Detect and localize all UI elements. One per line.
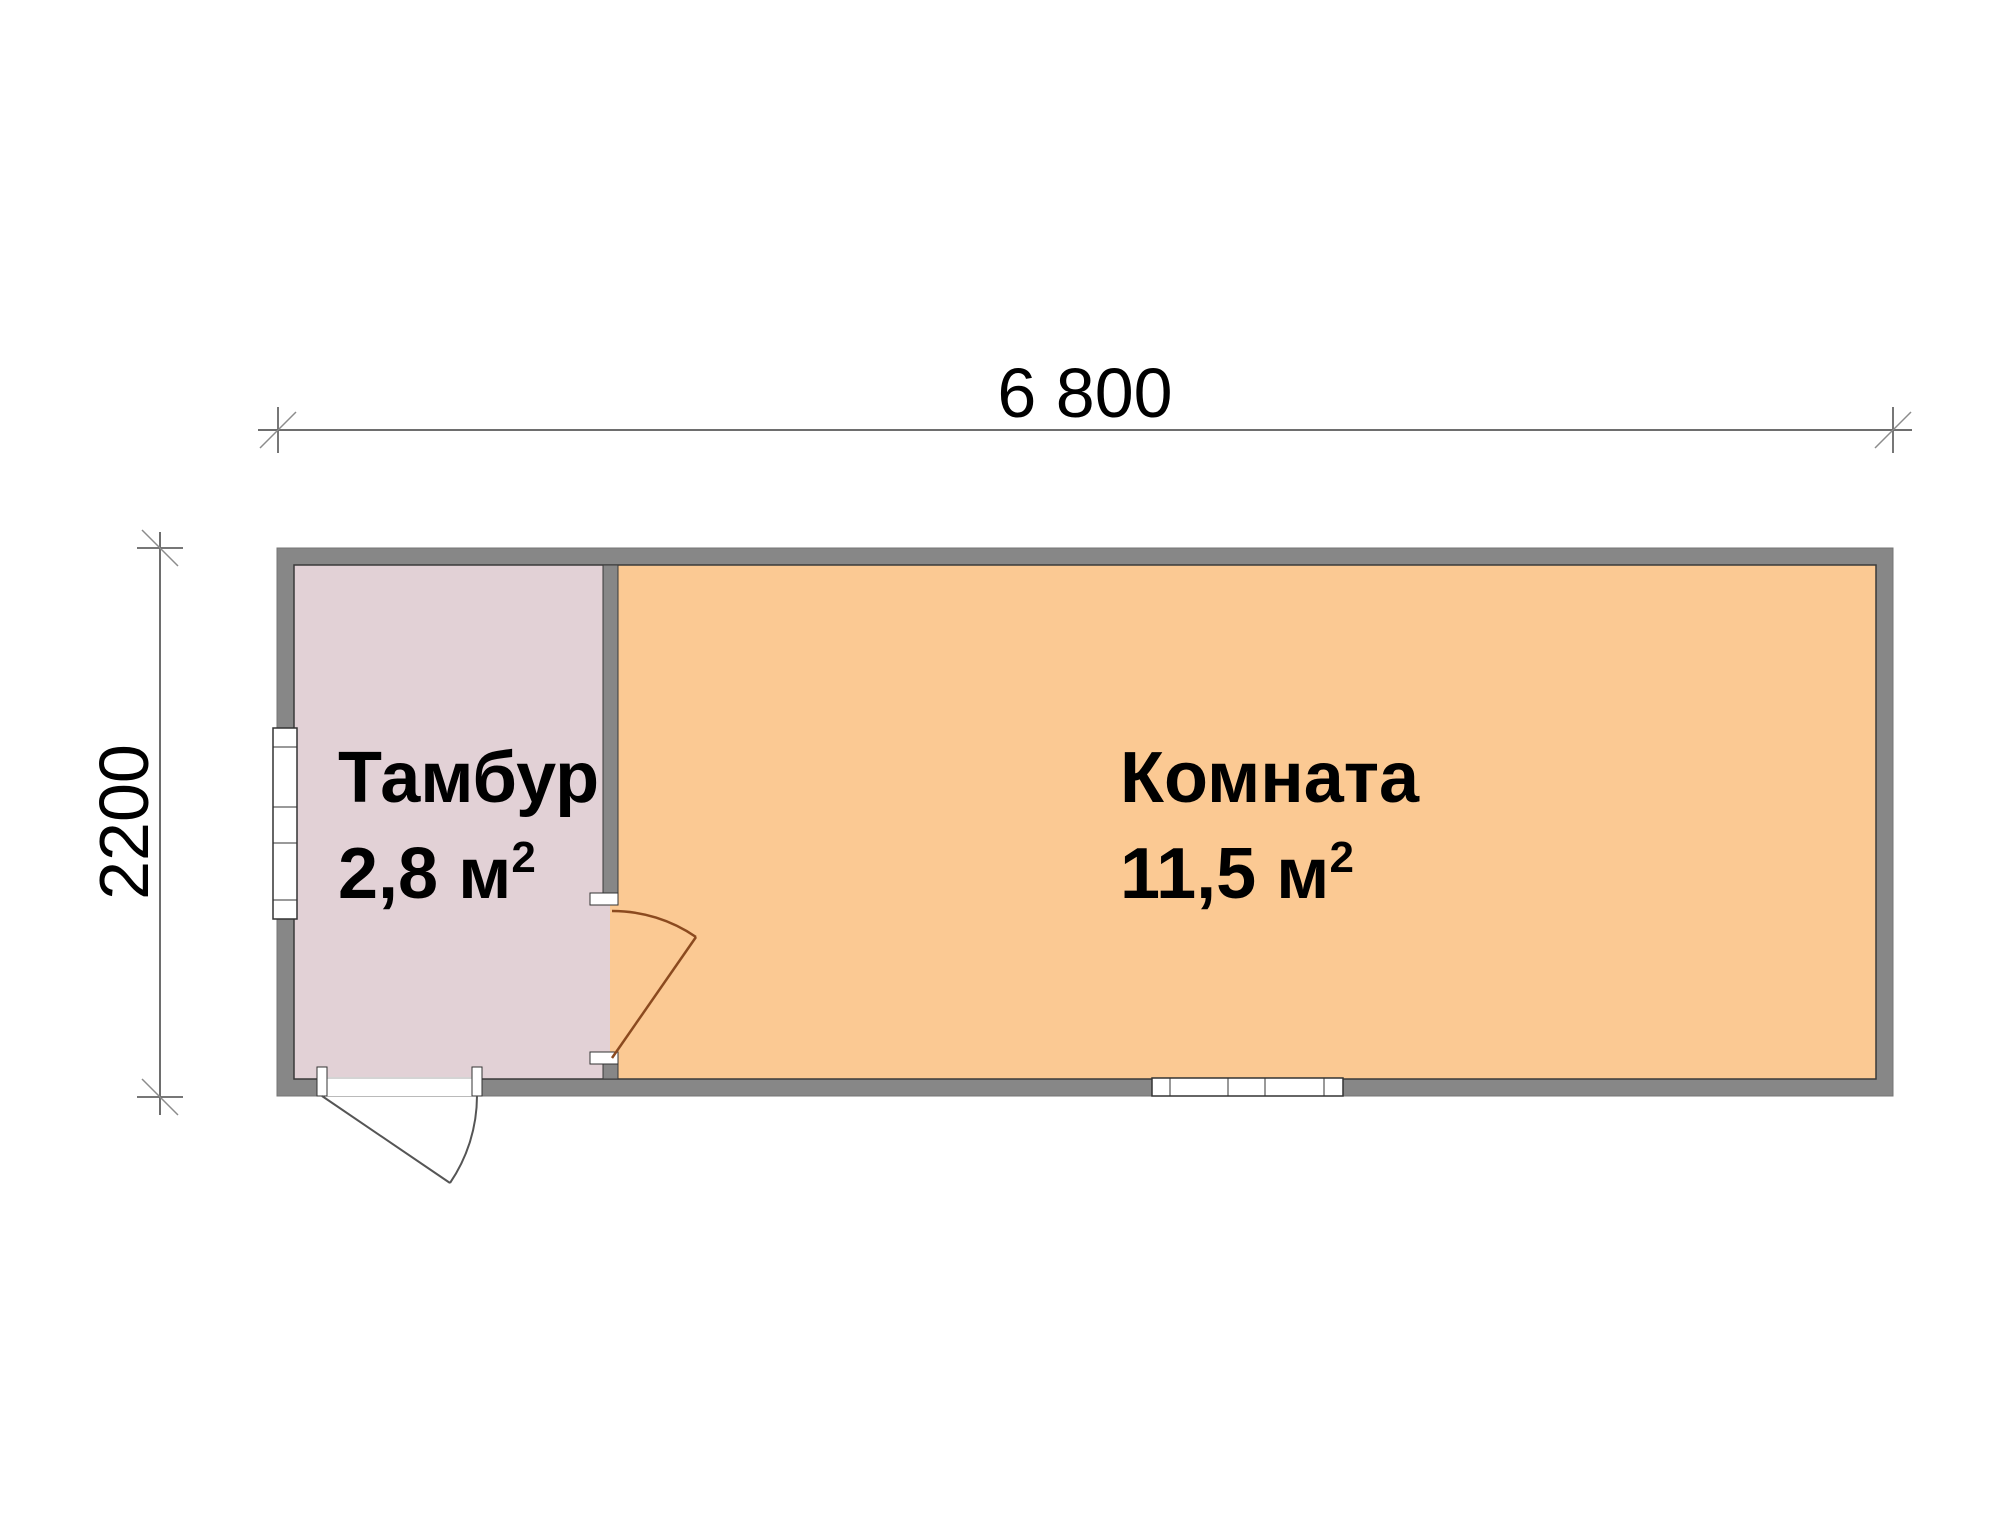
room-komnata-area: 11,5 м2 <box>1120 826 1419 932</box>
exterior-door-jamb-right <box>472 1067 482 1096</box>
room-komnata-label: Комната 11,5 м2 <box>1120 730 1419 932</box>
window-bottom-wall <box>1152 1078 1343 1096</box>
room-tambur-name: Тамбур <box>338 730 599 826</box>
dimension-height-label: 2200 <box>88 672 160 972</box>
exterior-door-swing-arc <box>450 1096 477 1183</box>
partition-wall-stub <box>603 1064 618 1079</box>
dimension-width-label: 6 800 <box>885 357 1285 429</box>
floor-plan-drawing <box>0 0 2000 1538</box>
room-tambur-area: 2,8 м2 <box>338 826 599 932</box>
room-tambur-label: Тамбур 2,8 м2 <box>338 730 599 932</box>
window-left-wall <box>273 728 297 919</box>
exterior-door-leaf <box>322 1096 450 1183</box>
room-komnata-area-superscript: 2 <box>1329 833 1353 882</box>
room-komnata-name: Комната <box>1120 730 1419 826</box>
room-tambur-area-superscript: 2 <box>511 833 535 882</box>
floor-plan-page: 6 800 2200 Тамбур 2,8 м2 Комната 11,5 м2 <box>0 0 2000 1538</box>
partition-wall-upper <box>603 565 618 893</box>
exterior-door-opening <box>327 1077 472 1096</box>
exterior-door-jamb-left <box>317 1067 327 1096</box>
